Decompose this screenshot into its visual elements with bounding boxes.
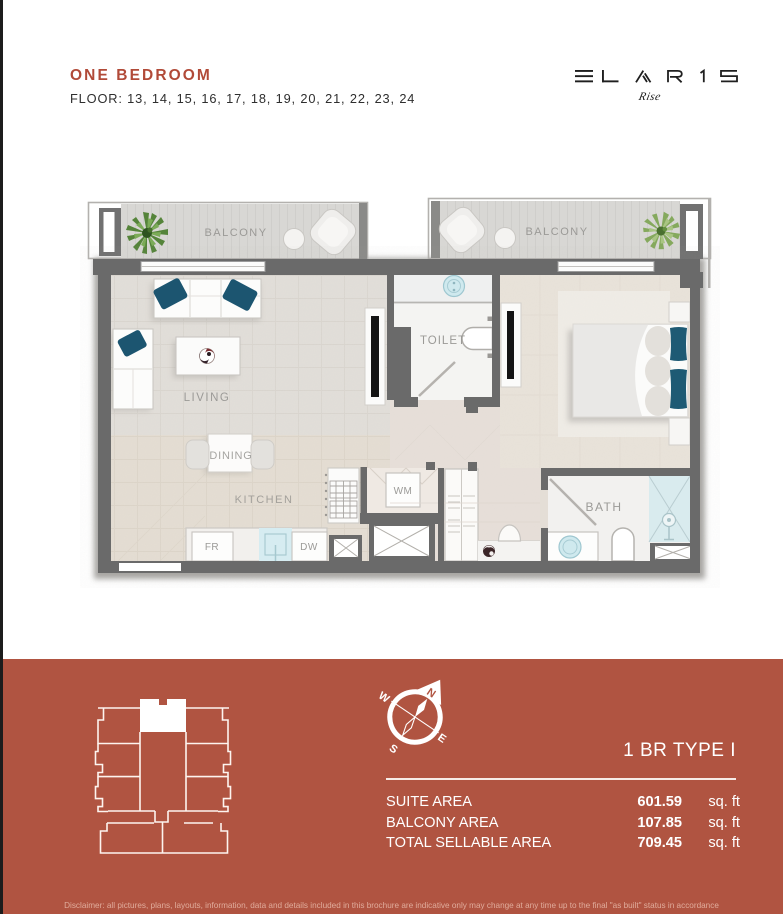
svg-text:BALCONY: BALCONY — [204, 227, 267, 239]
svg-text:TOILET: TOILET — [420, 335, 466, 347]
svg-text:W: W — [376, 690, 392, 706]
svg-text:BATH: BATH — [585, 500, 622, 514]
svg-text:DINING: DINING — [209, 450, 252, 462]
svg-text:LIVING: LIVING — [184, 392, 231, 404]
svg-text:FR: FR — [205, 542, 219, 553]
svg-text:BALCONY: BALCONY — [525, 226, 588, 238]
svg-text:DW: DW — [300, 542, 318, 553]
svg-text:KITCHEN: KITCHEN — [235, 494, 294, 506]
svg-text:WM: WM — [394, 486, 413, 497]
